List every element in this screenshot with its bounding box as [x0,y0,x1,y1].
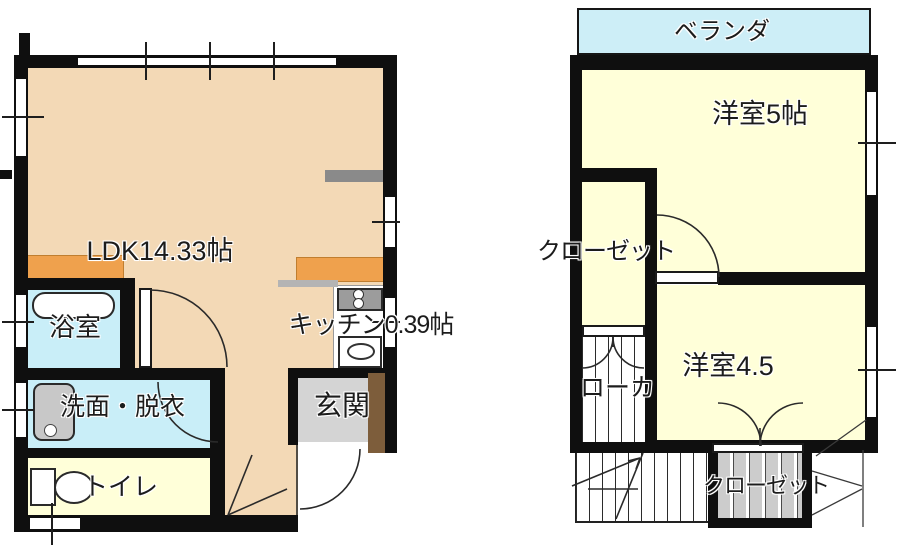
stair-direction-arrow [572,453,643,519]
floorplan-canvas: LDK14.33帖 浴室 洗面・脱衣 トイレ 玄関 キッチン0.39帖 ベランダ… [0,0,900,559]
label-veranda: ベランダ [577,20,867,44]
label-western-room-45: 洋室4.5 [668,353,788,380]
label-hallway: ローカ [570,376,665,401]
door-swing-lines [228,445,297,515]
label-closet-upper: クローゼット [535,240,677,264]
label-washroom: 洗面・脱衣 [30,395,215,420]
label-entrance: 玄関 [306,392,378,420]
label-closet-lower: クローゼット [703,475,821,497]
label-western-room-5: 洋室5帖 [690,101,830,128]
label-bath: 浴室 [40,314,110,340]
label-kitchen: キッチン0.39帖 [276,313,466,338]
label-toilet: トイレ [78,475,163,500]
label-ldk: LDK14.33帖 [60,238,260,265]
